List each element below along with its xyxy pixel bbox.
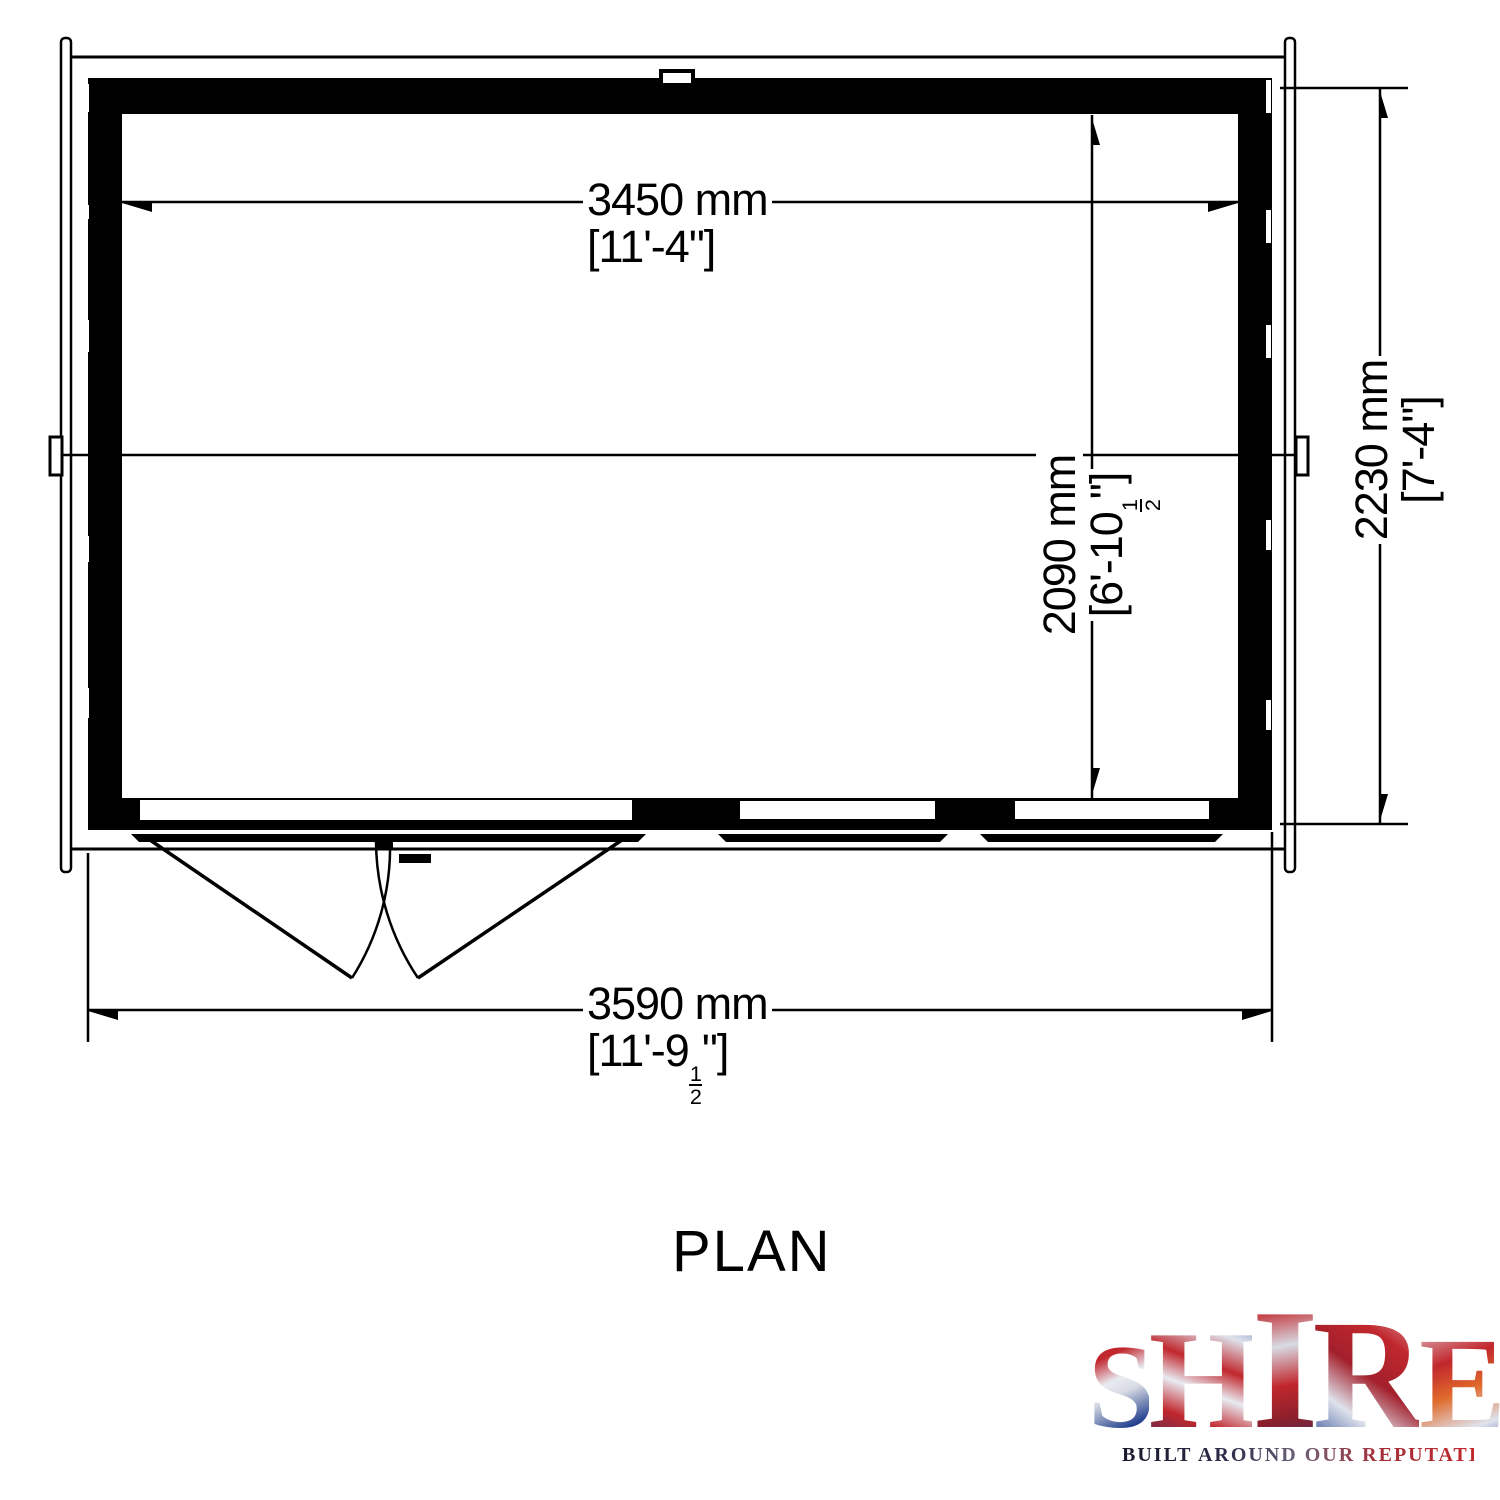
door-leaf-right: [418, 840, 622, 978]
logo-letter-h: H: [1149, 1303, 1252, 1458]
dim-outer-width-imperial: [11'-912"]: [583, 1027, 732, 1108]
plan-title: PLAN: [672, 1218, 832, 1285]
dim-arrow: [88, 1011, 118, 1020]
floor-plan-page: 3450 mm [11'-4"] 2090 mm [6'-1012"] 2230…: [0, 0, 1500, 1500]
logo-letter-r: R: [1313, 1288, 1420, 1461]
window-opening-2: [1015, 801, 1209, 819]
door-swing-arc-left: [352, 842, 390, 978]
dim-label-outer-width: 3590 mm [11'-912"]: [583, 980, 772, 1108]
dim-arrow: [1379, 794, 1388, 824]
door-handle-detail: [399, 854, 431, 863]
top-center-tab: [661, 71, 693, 85]
dim-outer-depth-imperial: [7'-4"]: [1395, 392, 1442, 508]
dim-outer-depth-metric: 2230 mm: [1348, 356, 1395, 545]
dim-inner-depth-metric: 2090 mm: [1036, 451, 1083, 640]
logo-tagline: BUILT AROUND OUR REPUTATION: [1122, 1444, 1474, 1467]
ridge-tab-right: [1296, 437, 1308, 475]
dim-arrow: [1379, 88, 1388, 118]
dim-arrow: [1242, 1011, 1272, 1020]
door-latch-detail: [377, 839, 393, 849]
window-sill-1: [718, 834, 948, 842]
door-opening: [140, 800, 632, 820]
logo-letter-e: E: [1419, 1312, 1500, 1456]
dim-inner-width-metric: 3450 mm: [583, 176, 772, 223]
dim-label-outer-depth: 2230 mm [7'-4"]: [1349, 335, 1441, 565]
dim-outer-width-metric: 3590 mm: [583, 980, 772, 1027]
shire-logo: SHIRE BUILT AROUND OUR REPUTATION: [1088, 1284, 1488, 1456]
ridge-tab-left: [50, 437, 62, 475]
window-sill-2: [980, 834, 1223, 842]
door-leaf-left: [150, 840, 352, 978]
logo-letter-s: S: [1088, 1320, 1149, 1453]
dim-inner-depth-imperial: [6'-1012"]: [1083, 469, 1164, 622]
dim-label-inner-width: 3450 mm [11'-4"]: [583, 176, 772, 271]
shire-logo-wordmark: SHIRE: [1088, 1284, 1488, 1456]
logo-letter-i: I: [1252, 1275, 1313, 1465]
window-opening-1: [740, 801, 935, 819]
dim-label-inner-depth: 2090 mm [6'-1012"]: [1054, 430, 1146, 660]
dim-inner-width-imperial: [11'-4"]: [583, 223, 719, 270]
